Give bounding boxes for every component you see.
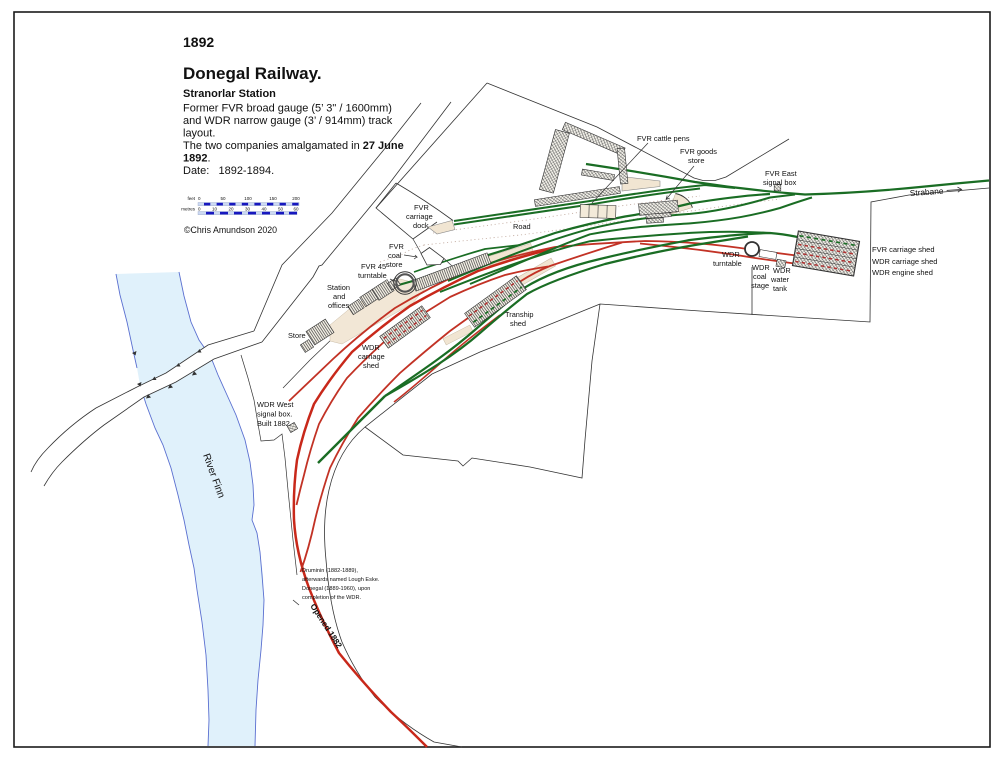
svg-text:30: 30 — [245, 207, 251, 212]
svg-text:WDR engine shed: WDR engine shed — [872, 268, 933, 277]
svg-text:shed: shed — [510, 319, 526, 328]
svg-text:FVR goods: FVR goods — [680, 147, 717, 156]
svg-text:Stranorlar Station: Stranorlar Station — [183, 88, 276, 100]
svg-text:store: store — [386, 260, 402, 269]
svg-text:signal box.: signal box. — [257, 410, 292, 419]
svg-text:completion of the WDR.: completion of the WDR. — [302, 595, 362, 601]
svg-text:WDR carriage shed: WDR carriage shed — [872, 257, 937, 266]
svg-text:WDR West: WDR West — [257, 400, 293, 409]
svg-text:Road: Road — [513, 222, 531, 231]
svg-text:and: and — [333, 292, 345, 301]
svg-text:Date: 1892-1894.: Date: 1892-1894. — [183, 165, 274, 177]
svg-text:signal box: signal box — [763, 178, 797, 187]
svg-text:1892: 1892 — [183, 34, 214, 50]
svg-text:FVR 45': FVR 45' — [361, 262, 388, 271]
svg-text:FVR East: FVR East — [765, 169, 797, 178]
svg-text:Built 1882: Built 1882 — [257, 419, 290, 428]
svg-text:tank: tank — [773, 284, 787, 293]
svg-text:The two companies amalgamated: The two companies amalgamated in 27 June — [183, 140, 404, 152]
svg-text:offices: offices — [328, 301, 350, 310]
svg-text:FVR cattle pens: FVR cattle pens — [637, 134, 690, 143]
svg-text:store: store — [688, 156, 704, 165]
svg-text:100: 100 — [244, 196, 252, 201]
svg-text:©Chris Amundson 2020: ©Chris Amundson 2020 — [184, 225, 277, 235]
svg-text:carriage: carriage — [406, 212, 433, 221]
svg-text:layout.: layout. — [183, 128, 215, 140]
svg-text:carriage: carriage — [358, 352, 385, 361]
svg-text:150: 150 — [269, 196, 277, 201]
svg-text:shed: shed — [363, 361, 379, 370]
svg-text:coal: coal — [388, 251, 402, 260]
svg-text:Donegal (1889-1960), upon: Donegal (1889-1960), upon — [302, 586, 370, 592]
svg-text:200: 200 — [292, 196, 300, 201]
svg-text:1892.: 1892. — [183, 153, 211, 165]
svg-text:feet: feet — [187, 196, 195, 201]
svg-text:stage: stage — [751, 281, 769, 290]
svg-text:WDR: WDR — [722, 250, 740, 259]
svg-text:FVR: FVR — [414, 203, 429, 212]
svg-text:FVR carriage shed: FVR carriage shed — [872, 245, 935, 254]
svg-text:60: 60 — [293, 207, 299, 212]
svg-text:water: water — [770, 275, 790, 284]
svg-text:WDR: WDR — [773, 266, 791, 275]
svg-text:WDR: WDR — [362, 343, 380, 352]
svg-text:40: 40 — [261, 207, 267, 212]
svg-text:50: 50 — [220, 196, 226, 201]
svg-text:10: 10 — [212, 207, 218, 212]
svg-text:coal: coal — [753, 272, 767, 281]
svg-text:turntable: turntable — [358, 271, 387, 280]
svg-text:Store: Store — [288, 331, 306, 340]
svg-text:50: 50 — [278, 207, 284, 212]
svg-text:20: 20 — [228, 207, 234, 212]
svg-text:afterwards named Lough Eske.: afterwards named Lough Eske. — [302, 577, 380, 583]
svg-text:Former FVR broad gauge (5’ 3": Former FVR broad gauge (5’ 3" / 1600mm) — [183, 103, 392, 115]
svg-text:Druminin (1882-1889),: Druminin (1882-1889), — [302, 568, 358, 574]
svg-text:WDR: WDR — [752, 263, 770, 272]
svg-text:Donegal Railway.: Donegal Railway. — [183, 64, 322, 83]
svg-text:FVR: FVR — [389, 242, 404, 251]
svg-text:dock: dock — [413, 221, 429, 230]
svg-text:and WDR narrow gauge (3’ / 914: and WDR narrow gauge (3’ / 914mm) track — [183, 115, 393, 127]
svg-text:turntable: turntable — [713, 259, 742, 268]
svg-text:Tranship: Tranship — [505, 310, 533, 319]
svg-text:metres: metres — [181, 207, 196, 212]
svg-text:Station: Station — [327, 283, 350, 292]
